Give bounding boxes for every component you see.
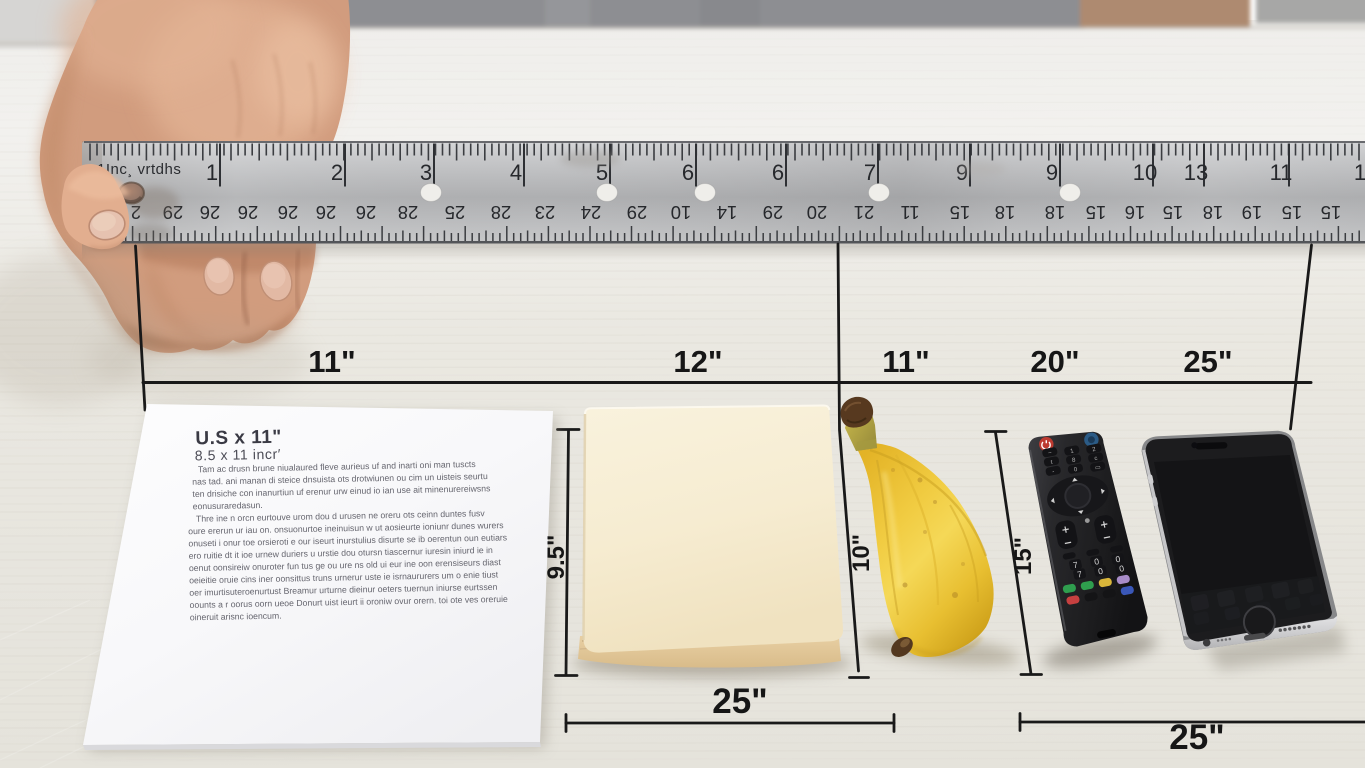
svg-text:18: 18 <box>1045 202 1066 223</box>
svg-text:11": 11" <box>308 344 355 379</box>
svg-text:3: 3 <box>420 160 432 185</box>
svg-text:4: 4 <box>510 160 522 185</box>
svg-text:23: 23 <box>535 202 556 223</box>
svg-text:25": 25" <box>712 682 768 721</box>
svg-text:16: 16 <box>1125 202 1146 223</box>
svg-text:7: 7 <box>864 160 876 185</box>
svg-text:28: 28 <box>398 202 419 223</box>
svg-text:29: 29 <box>627 202 648 223</box>
svg-text:19: 19 <box>1242 202 1263 223</box>
svg-text:15": 15" <box>1010 537 1037 575</box>
svg-text:1: 1 <box>1354 160 1365 185</box>
svg-text:10": 10" <box>848 534 875 572</box>
svg-text:11: 11 <box>1270 160 1293 185</box>
svg-text:15: 15 <box>1282 202 1303 223</box>
svg-text:26: 26 <box>200 202 221 223</box>
svg-text:6: 6 <box>772 160 784 185</box>
svg-text:20": 20" <box>1030 344 1079 379</box>
svg-text:10: 10 <box>671 202 692 223</box>
svg-text:oineruit arisnc ioencum.: oineruit arisnc ioencum. <box>190 611 282 623</box>
svg-text:8.5 x 11 incr′: 8.5 x 11 incr′ <box>195 446 282 464</box>
svg-text:21: 21 <box>854 202 875 223</box>
svg-text:26: 26 <box>278 202 299 223</box>
svg-text:9: 9 <box>1046 160 1058 185</box>
svg-text:28: 28 <box>491 202 512 223</box>
svg-text:15: 15 <box>1086 202 1107 223</box>
svg-text:18: 18 <box>1203 202 1224 223</box>
svg-text:6: 6 <box>682 160 694 185</box>
svg-text:11": 11" <box>882 344 929 379</box>
svg-text:26: 26 <box>238 202 259 223</box>
svg-text:25": 25" <box>1169 718 1225 757</box>
svg-text:24: 24 <box>581 202 602 223</box>
svg-text:9.5": 9.5" <box>543 535 570 580</box>
svg-text:15: 15 <box>1163 202 1184 223</box>
svg-text:2: 2 <box>331 160 343 185</box>
svg-text:11: 11 <box>900 202 919 223</box>
svg-text:15: 15 <box>1321 202 1342 223</box>
svg-text:25": 25" <box>1183 344 1232 379</box>
svg-text:26: 26 <box>356 202 377 223</box>
svg-text:15: 15 <box>950 202 971 223</box>
svg-text:10: 10 <box>1133 160 1157 185</box>
svg-text:14: 14 <box>717 202 738 223</box>
svg-text:26: 26 <box>316 202 337 223</box>
svg-text:eonusuraredasun.: eonusuraredasun. <box>193 500 263 511</box>
svg-text:12": 12" <box>673 344 722 379</box>
svg-text:29: 29 <box>763 202 784 223</box>
svg-text:18: 18 <box>995 202 1016 223</box>
svg-text:20: 20 <box>807 202 828 223</box>
svg-text:1: 1 <box>206 160 218 185</box>
svg-text:25: 25 <box>445 202 466 223</box>
svg-text:13: 13 <box>1184 160 1208 185</box>
